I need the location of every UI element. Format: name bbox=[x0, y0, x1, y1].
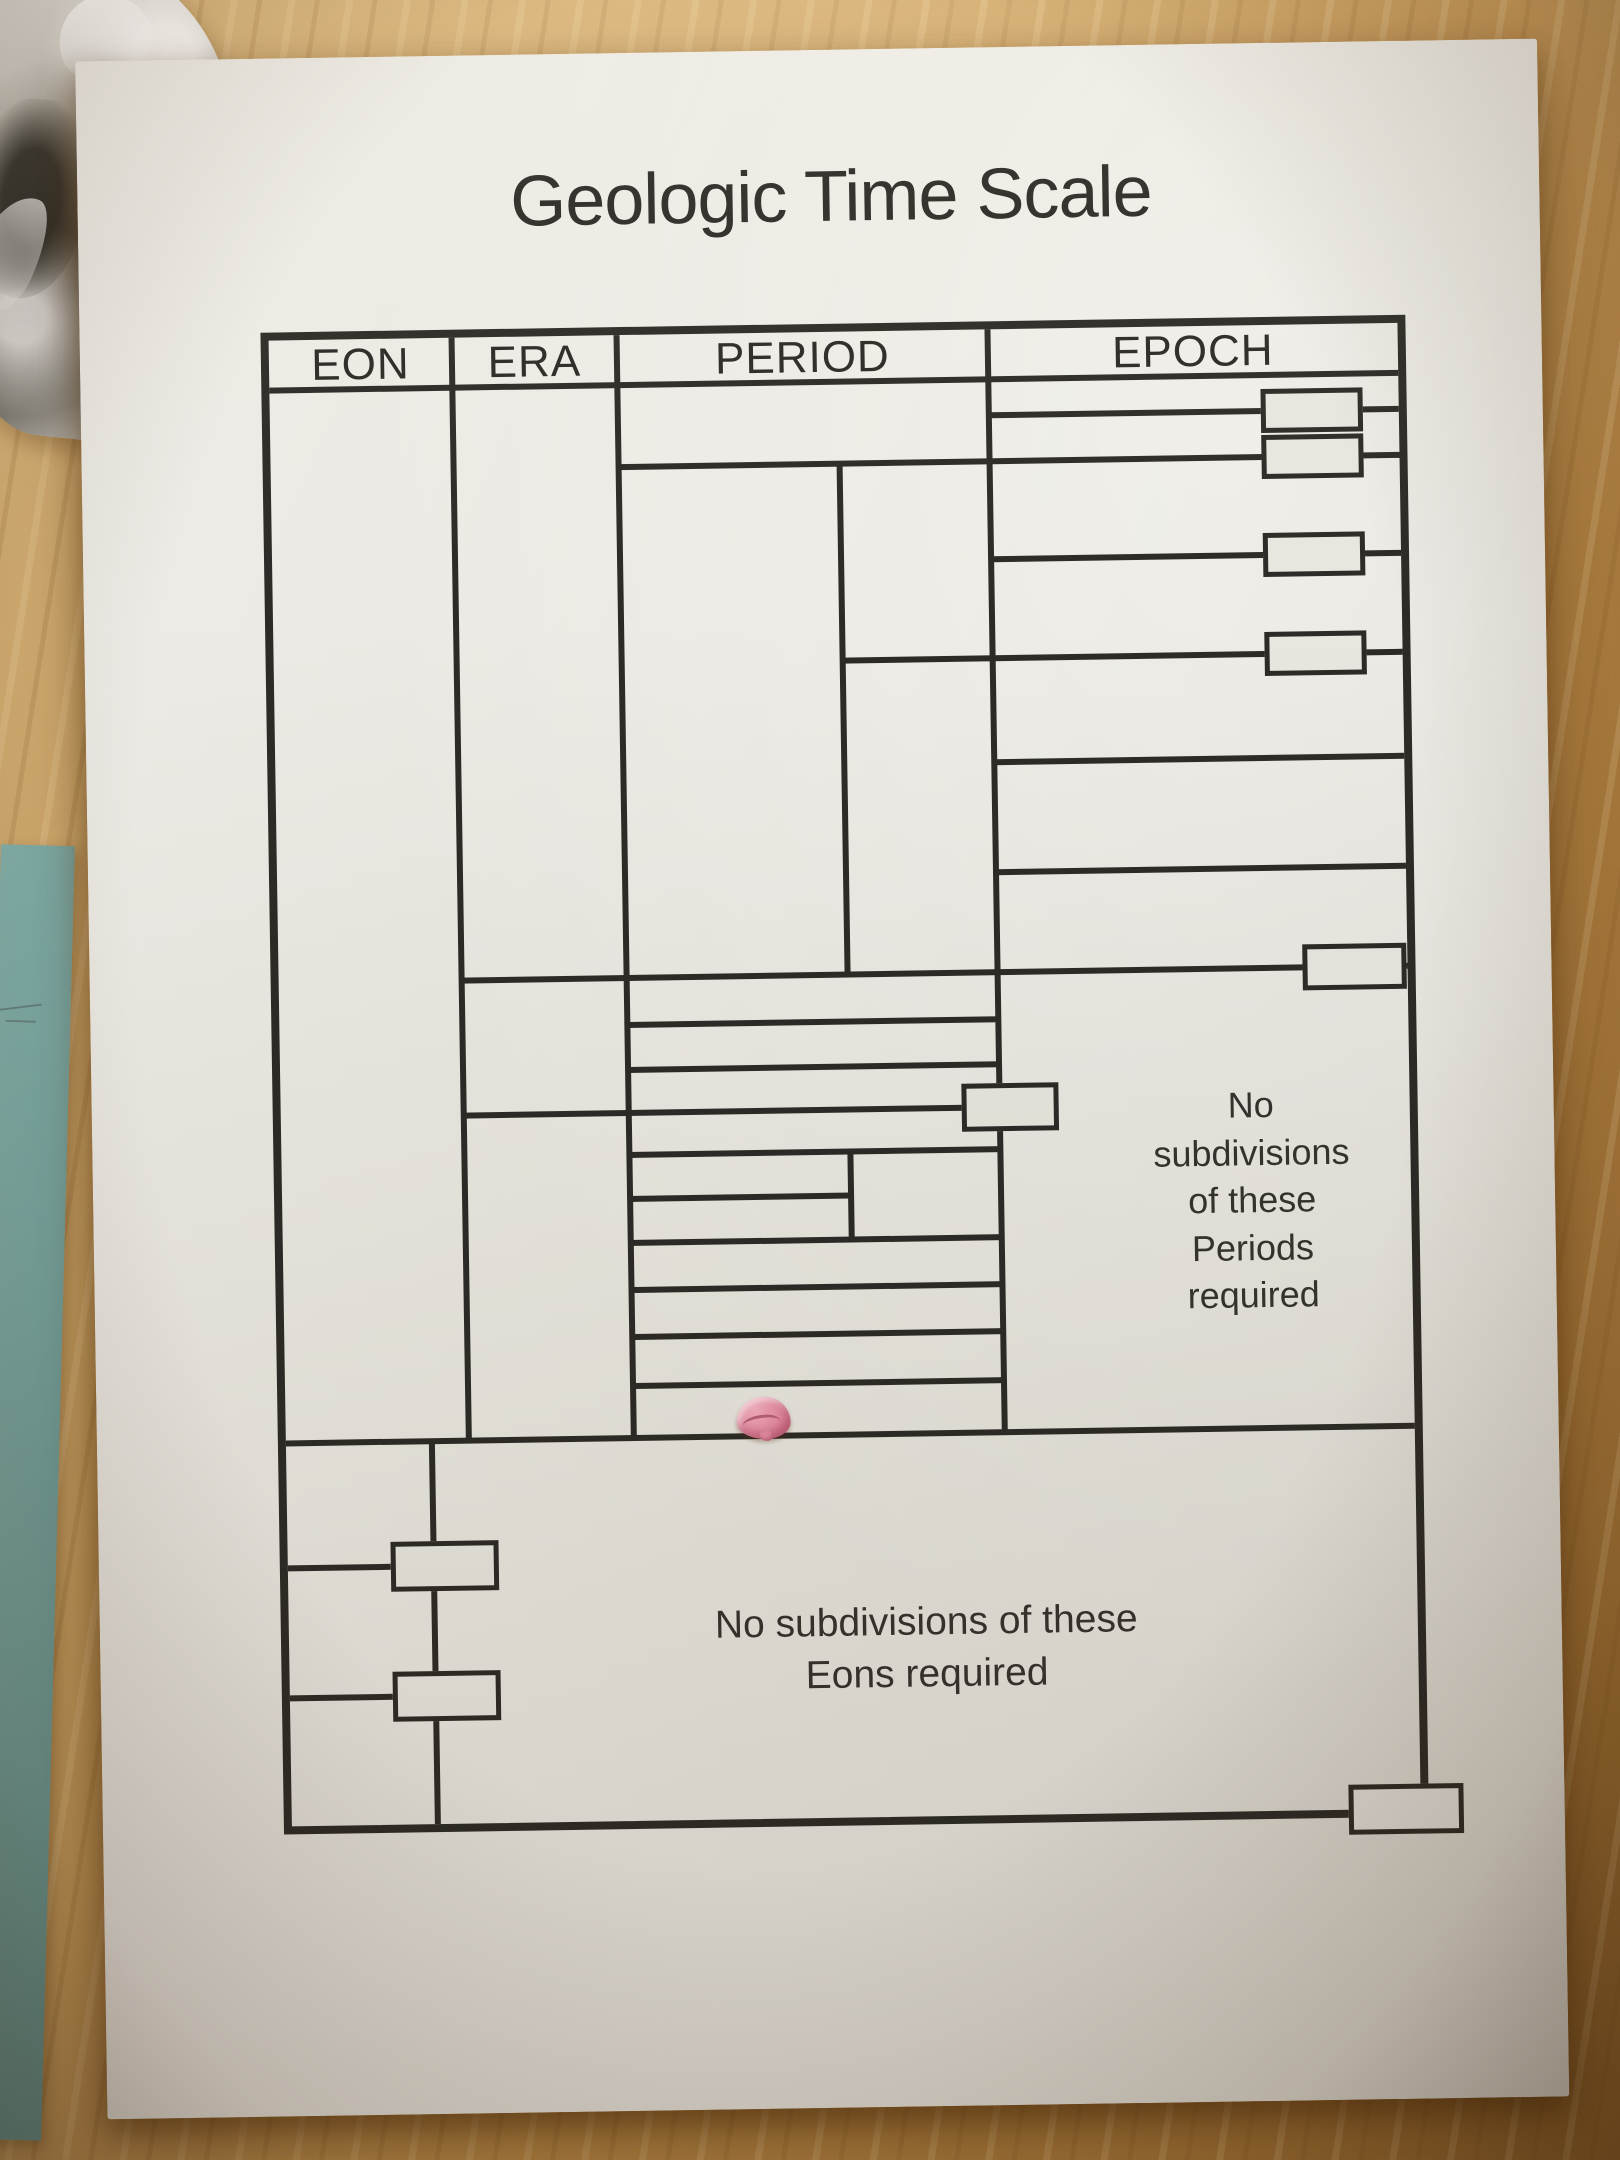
pink-brain-eraser bbox=[736, 1397, 791, 1440]
answer-box-epoch-boundary bbox=[1264, 630, 1367, 676]
answer-box-epoch-boundary bbox=[1260, 387, 1363, 433]
answer-box-era-boundary bbox=[961, 1082, 1059, 1132]
note-no-period-subdivisions: No subdivisions of these Periods require… bbox=[1091, 1079, 1413, 1322]
note-no-eon-subdivisions: No subdivisions of these Eons required bbox=[434, 1589, 1419, 1709]
answer-box-epoch-boundary bbox=[1263, 531, 1366, 577]
pencil-scribble bbox=[0, 1004, 46, 1045]
photo-scene: Geologic Time Scale EON ERA PERIOD EPOCH bbox=[0, 0, 1620, 2160]
answer-box-epoch-boundary bbox=[1261, 433, 1364, 479]
header-era: ERA bbox=[452, 335, 618, 388]
answer-box-eon-boundary bbox=[390, 1540, 499, 1592]
answer-box-era-boundary bbox=[1302, 943, 1407, 991]
header-eon: EON bbox=[269, 338, 453, 391]
answer-box-eon-boundary bbox=[392, 1670, 501, 1722]
worksheet-page: Geologic Time Scale EON ERA PERIOD EPOCH bbox=[75, 39, 1569, 2120]
page-title: Geologic Time Scale bbox=[266, 147, 1396, 247]
answer-box-table-bottom bbox=[1348, 1783, 1464, 1835]
